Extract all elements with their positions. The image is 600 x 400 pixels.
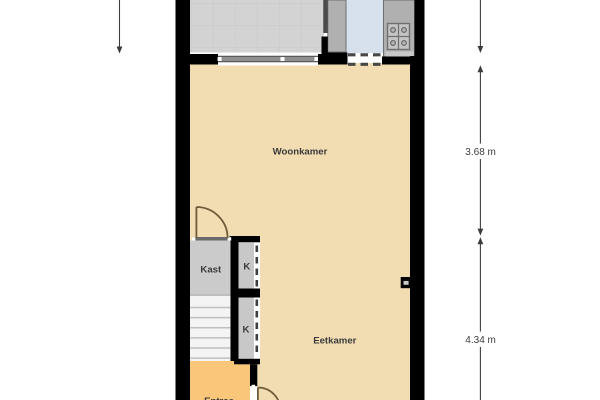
svg-text:Kast: Kast (200, 265, 222, 276)
svg-text:Entree: Entree (204, 396, 234, 400)
svg-text:K: K (243, 262, 250, 273)
svg-text:3.68 m: 3.68 m (465, 147, 496, 158)
svg-text:K: K (243, 324, 250, 335)
svg-text:4.34 m: 4.34 m (465, 335, 496, 346)
svg-text:Woonkamer: Woonkamer (273, 147, 328, 158)
svg-text:Eetkamer: Eetkamer (313, 335, 356, 346)
